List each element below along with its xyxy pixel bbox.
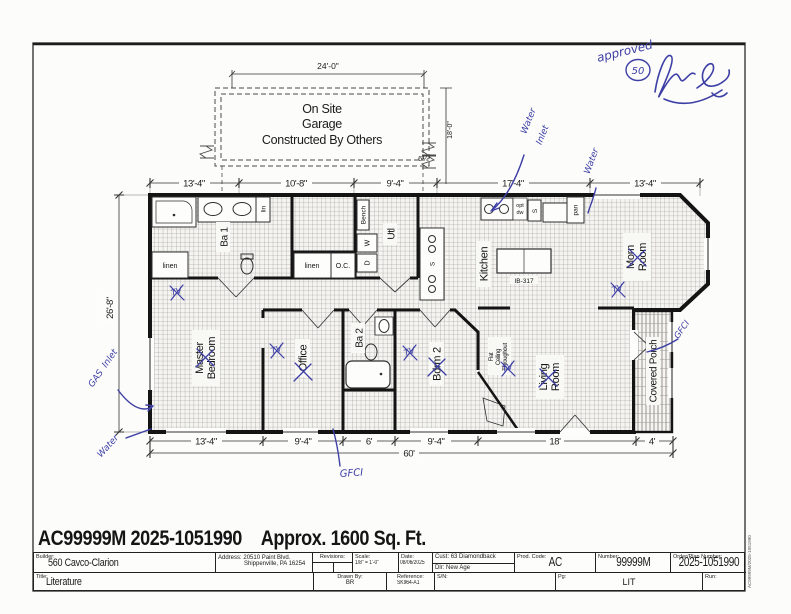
label-s-range: S bbox=[430, 261, 437, 266]
garage-width-dim-line bbox=[232, 70, 424, 88]
handwriting-water-inlet-word1: Water bbox=[520, 106, 540, 136]
garage-line1: On Site bbox=[302, 102, 342, 116]
handwriting-water-left: Water bbox=[96, 432, 122, 459]
handwriting-water-inlet-word2: Inlet bbox=[535, 124, 552, 147]
number-value: 99999M bbox=[616, 555, 650, 569]
plan-headline: AC99999M 2025-1051990Approx. 1600 Sq. Ft… bbox=[38, 527, 426, 551]
garage-line3: Constructed By Others bbox=[262, 133, 382, 147]
titleblock-reference-cell: Reference: SK964-A1 bbox=[387, 573, 435, 590]
garage-break-left bbox=[200, 146, 214, 158]
label-master-1: Master bbox=[194, 341, 206, 373]
date-label: Date: bbox=[399, 553, 432, 560]
dlr-value: New Age bbox=[446, 565, 470, 571]
dim-top-1: 10'-8" bbox=[285, 179, 307, 190]
label-dw: dw bbox=[516, 210, 523, 216]
drawn-by-value: BR bbox=[314, 580, 386, 587]
garage-offset-dim: 6¼' bbox=[418, 154, 430, 163]
label-lin: lin bbox=[261, 205, 268, 212]
opt-dw-box bbox=[513, 198, 527, 220]
label-ba1: Ba 1 bbox=[220, 227, 231, 247]
pg-label: Pg: bbox=[556, 573, 568, 580]
dim-left: 26'-8" bbox=[105, 297, 116, 319]
dim-top-4: 13'-4" bbox=[634, 179, 656, 190]
titleblock-pg-cell: Pg: LIT bbox=[556, 573, 703, 590]
reference-value: SK964-A1 bbox=[397, 580, 419, 587]
headline-model: AC99999M 2025-1051990 bbox=[38, 527, 242, 550]
garage-depth-dim: 18'-0" bbox=[447, 121, 454, 139]
headline-area: Approx. 1600 Sq. Ft. bbox=[261, 527, 426, 550]
floor-plan-drawing: On Site Garage Constructed By Others 24'… bbox=[0, 0, 791, 609]
titleblock-drawn-by-cell: Drawn By: BR bbox=[314, 573, 387, 590]
garage-line2: Garage bbox=[302, 117, 342, 131]
label-bench: Bench bbox=[361, 205, 368, 224]
prod-code-value: AC bbox=[548, 555, 561, 569]
vanity-double-sink bbox=[198, 197, 256, 222]
label-kitchen: Kitchen bbox=[479, 247, 491, 282]
title-value: Literature bbox=[46, 576, 82, 588]
signature-scribble bbox=[655, 55, 729, 103]
reference-label: Reference: bbox=[387, 573, 434, 580]
titleblock-builder-cell: Builder: 560 Cavco-Clarion bbox=[34, 553, 216, 573]
dim-bottom-3: 9'-4" bbox=[428, 437, 445, 448]
label-master-2: Bedroom bbox=[206, 337, 218, 380]
gfci-bottom-line bbox=[333, 429, 340, 466]
dim-bottom-4: 18' bbox=[549, 437, 561, 448]
pg-value: LIT bbox=[556, 577, 702, 587]
titleblock-scale-cell: Scale: 1/8" = 1'-0" bbox=[353, 553, 399, 573]
drawn-by-label: Drawn By: bbox=[314, 573, 386, 580]
dim-top-0: 13'-4" bbox=[183, 179, 205, 190]
label-bdrm2: Bdrm 2 bbox=[432, 347, 444, 381]
titleblock-title-cell: Title: Literature bbox=[34, 573, 314, 590]
garage-text: On Site Garage Constructed By Others bbox=[262, 102, 382, 147]
titleblock-order-cell: Order/Plan Number: 2025-1051990 bbox=[671, 553, 746, 573]
label-flat-1: Flat bbox=[489, 352, 495, 361]
order-value: 2025-1051990 bbox=[679, 555, 740, 569]
dim-bottom-5: 4' bbox=[649, 437, 656, 448]
gas-inlet-arrow bbox=[118, 390, 153, 411]
titleblock-date-cell: Date: 08/06/2025 bbox=[399, 553, 433, 573]
dim-top-3: 17'-4" bbox=[502, 179, 524, 190]
dim-bottom-0: 13'-4" bbox=[195, 437, 217, 448]
garage-width-dim: 24'-0" bbox=[317, 61, 339, 71]
date-value: 08/06/2025 bbox=[400, 560, 425, 567]
label-oc: O.C. bbox=[336, 263, 350, 270]
titleblock-sn-cell: S/N: bbox=[435, 573, 556, 590]
dlr-label: Dlr: bbox=[435, 565, 444, 571]
title-block: Builder: 560 Cavco-Clarion Address: 2051… bbox=[33, 552, 745, 591]
handwriting-approved: approved bbox=[595, 37, 654, 64]
dim-top-2: 9'-4" bbox=[387, 179, 404, 190]
sheet-edge-text: AC99999M/2025-1051990 bbox=[747, 535, 752, 588]
label-linen-master: linen bbox=[163, 263, 178, 270]
label-washer: W bbox=[365, 239, 372, 246]
bathtub bbox=[346, 361, 390, 388]
titleblock-cust-dlr-cell: Cust: 63 Diamondback Dlr: New Age bbox=[433, 553, 515, 573]
handwriting-gfci-right: GFCI bbox=[673, 318, 693, 340]
titleblock-prod-code-cell: Prod. Code: AC bbox=[515, 553, 596, 573]
label-morn-1: Morn bbox=[625, 245, 637, 269]
handwriting-gfci-bottom: GFCI bbox=[339, 467, 363, 480]
shower bbox=[152, 197, 196, 227]
titleblock-address-cell: Address: 20510 Paint Blvd. Shippenville,… bbox=[216, 553, 313, 573]
address-line1: 20510 Paint Blvd. bbox=[243, 555, 290, 561]
address-label: Address: bbox=[218, 555, 242, 561]
handwriting-circled-number: 50 bbox=[632, 66, 645, 77]
water-left-line bbox=[126, 429, 151, 438]
cust-label: Cust: bbox=[435, 554, 449, 560]
label-dryer: D bbox=[365, 260, 372, 265]
label-s-cabinet: S bbox=[532, 208, 539, 213]
dim-bottom-2: 6' bbox=[366, 437, 373, 448]
sn-label: S/N: bbox=[435, 573, 555, 580]
titleblock-run-cell: Run: bbox=[703, 573, 746, 590]
label-living-2: Room bbox=[550, 363, 562, 391]
label-linen-hall: linen bbox=[305, 263, 320, 270]
builder-value: 560 Cavco-Clarion bbox=[48, 557, 119, 569]
scale-label: Scale: bbox=[353, 553, 398, 560]
label-utl: Utl bbox=[387, 228, 398, 239]
label-opt: opt bbox=[516, 203, 524, 209]
label-ba2: Ba 2 bbox=[355, 328, 366, 348]
scale-value: 1/8" = 1'-0" bbox=[355, 560, 379, 567]
handwriting-water-top: Water bbox=[583, 146, 602, 176]
label-pan: pan bbox=[573, 204, 580, 215]
address-line2: Shippenville, PA 16254 bbox=[218, 561, 305, 567]
label-island: IB-317 bbox=[514, 278, 534, 285]
dim-overall: 60' bbox=[403, 449, 415, 460]
bottom-dimension-rows: 13'-4" 9'-4" 6' 9'-4" 18' 4' 60' bbox=[147, 435, 677, 460]
run-label: Run: bbox=[703, 573, 746, 580]
handwriting-gas-inlet: Inlet bbox=[101, 347, 121, 369]
revisions-label: Revisions: bbox=[313, 553, 352, 560]
handwriting-gas: GAS bbox=[87, 368, 106, 389]
upper-cabinet bbox=[543, 203, 567, 222]
cust-value: 63 Diamondback bbox=[451, 554, 496, 560]
titleblock-number-cell: Number: 99999M bbox=[596, 553, 671, 573]
dim-bottom-1: 9'-4" bbox=[295, 437, 312, 448]
scanned-floor-plan-sheet: { "sheet": { "headline_model": "AC99999M… bbox=[0, 0, 791, 609]
titleblock-revisions-cell: Revisions: bbox=[313, 553, 353, 573]
